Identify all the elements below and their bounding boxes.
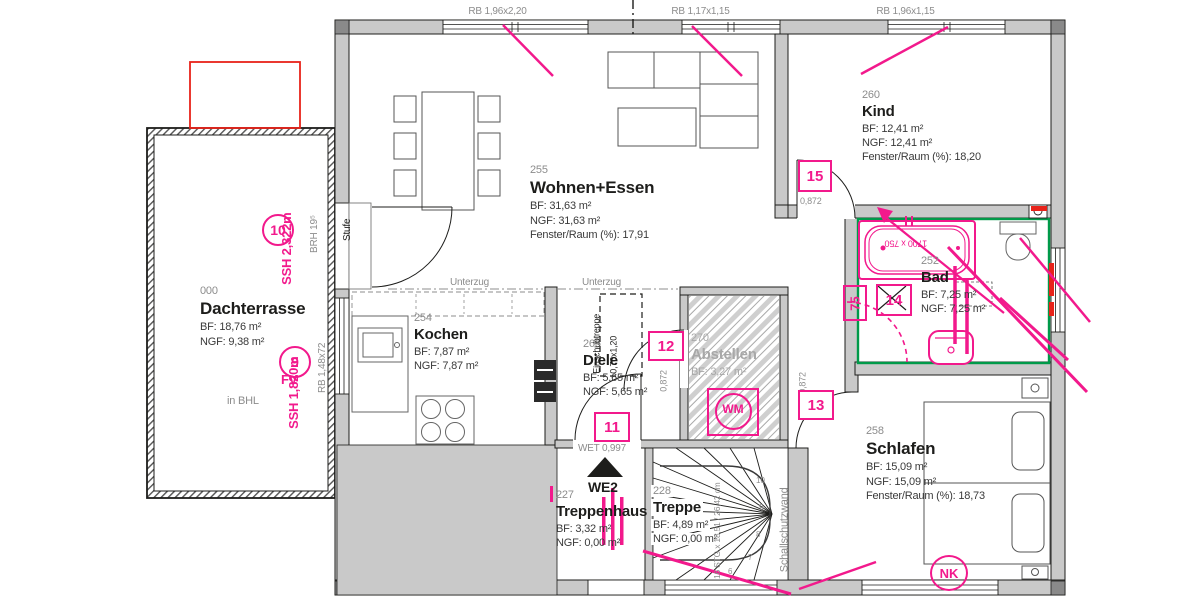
- room-ngf: NGF: 5,65 m²: [583, 385, 647, 399]
- room-bf: BF: 18,76 m²: [200, 320, 305, 334]
- attic-ladder-size: 0,70x1,20: [608, 336, 620, 374]
- neighbour-unit-area: [337, 445, 557, 595]
- room-bf: BF: 3,32 m²: [556, 522, 647, 536]
- washing-machine-icon: WM: [707, 388, 759, 436]
- room-block-wohnen: 255 Wohnen+Essen BF: 31,63 m² NGF: 31,63…: [530, 163, 654, 242]
- room-bf: BF: 7,87 m²: [414, 345, 478, 359]
- room-name: Dachterrasse: [200, 298, 305, 320]
- room-bf: BF: 7,25 m²: [921, 288, 985, 302]
- room-block-schlafen: 258 Schlafen BF: 15,09 m² NGF: 15,09 m² …: [866, 424, 985, 503]
- red-markup-rect: [190, 62, 300, 128]
- room-block-abstellen: 270 Abstellen BF: 3,27 m²: [691, 331, 757, 379]
- room-block-treppe: 228 Treppe BF: 4,89 m² NGF: 0,00 m²: [651, 484, 719, 546]
- room-name: Treppe: [651, 499, 703, 516]
- room-bf: BF: 3,27 m²: [691, 365, 757, 379]
- unterzug-label: Unterzug: [450, 276, 489, 289]
- room-name: Treppenhaus: [556, 502, 647, 522]
- window-size-label: RB 1,96x2,20: [440, 5, 555, 18]
- room-block-dachterrasse: 000 Dachterrasse BF: 18,76 m² NGF: 9,38 …: [200, 284, 305, 349]
- washing-machine-label: WM: [709, 402, 757, 416]
- wet-dim-label: WET 0,997: [563, 442, 641, 455]
- stair-step-number: 9: [759, 503, 764, 512]
- marker-box-11: 11: [594, 412, 630, 442]
- stove-icon: [416, 396, 474, 444]
- terrace-note: in BHL: [227, 394, 259, 408]
- room-bf: BF: 4,89 m²: [651, 519, 710, 531]
- door-width-dim: 0,872: [800, 196, 822, 208]
- marker-box-75: 75: [843, 285, 867, 321]
- room-number: 000: [200, 284, 305, 298]
- stair-step-number: 8: [756, 530, 761, 539]
- room-name: Wohnen+Essen: [530, 177, 654, 199]
- room-fenster: Fenster/Raum (%): 18,20: [862, 150, 981, 164]
- stufe-label: Stufe: [341, 219, 354, 241]
- room-block-treppenhaus: 227 Treppenhaus BF: 3,32 m² NGF: 0,00 m²: [556, 488, 647, 550]
- room-ngf: NGF: 15,09 m²: [866, 475, 985, 489]
- brh-label: BRH 19⁵: [308, 215, 321, 253]
- unterzug-label: Unterzug: [582, 276, 621, 289]
- room-ngf: NGF: 7,87 m²: [414, 359, 478, 373]
- sofa-icon: [608, 52, 758, 148]
- ssh-label-top: SSH 2,322m: [279, 212, 296, 284]
- ssh-label-bottom: SSH 1,820m: [286, 356, 303, 428]
- stair-step-number: 7: [748, 553, 753, 562]
- room-ngf: NGF: 31,63 m²: [530, 214, 654, 228]
- room-number: 228: [651, 485, 673, 497]
- room-fenster: Fenster/Raum (%): 18,73: [866, 489, 985, 503]
- room-ngf: NGF: 7,25 m²: [921, 302, 985, 316]
- room-name: Schlafen: [866, 438, 985, 460]
- room-number: 255: [530, 163, 654, 177]
- entrance-arrow-icon: [587, 457, 623, 477]
- room-block-kind: 260 Kind BF: 12,41 m² NGF: 12,41 m² Fens…: [862, 88, 981, 165]
- attic-ladder-label: Einschubtreppe: [591, 314, 603, 374]
- room-name: Abstellen: [691, 345, 757, 365]
- window-size-label: RB 1,96x1,15: [848, 5, 963, 18]
- marker-box-75-text: 75: [848, 296, 863, 310]
- stair-step-number: 10: [756, 476, 765, 485]
- room-name: Bad: [921, 268, 985, 288]
- room-bf: BF: 12,41 m²: [862, 122, 981, 136]
- dining-table-icon: [394, 92, 500, 210]
- room-ngf: NGF: 0,00 m²: [556, 536, 647, 550]
- window-size-label-left: RB 1,48x72: [316, 343, 329, 393]
- room-ngf: NGF: 12,41 m²: [862, 136, 981, 150]
- room-fenster: Fenster/Raum (%): 17,91: [530, 228, 654, 242]
- room-number: 260: [862, 88, 981, 102]
- stair-dimension-label: 16 STG x 18,51 / 26,42 cm: [712, 482, 723, 579]
- room-block-kochen: 254 Kochen BF: 7,87 m² NGF: 7,87 m²: [414, 311, 478, 373]
- window-size-label: RB 1,17x1,15: [643, 5, 758, 18]
- floor-plan: 10 9 8 7 6 RB 1,96x2,20 RB 1,17x1,15 RB …: [0, 0, 1200, 600]
- room-bf: BF: 31,63 m²: [530, 199, 654, 213]
- room-number: 270: [691, 331, 757, 345]
- marker-box-14: 14: [876, 284, 912, 316]
- bathtub-size-label: 1700 x 750: [874, 237, 938, 249]
- nk-marker: NK: [930, 555, 968, 591]
- sink-icon: [358, 328, 402, 362]
- room-number: 258: [866, 424, 985, 438]
- room-name: Kochen: [414, 325, 478, 345]
- marker-box-15: 15: [798, 160, 832, 192]
- room-bf: BF: 15,09 m²: [866, 460, 985, 474]
- room-ngf: NGF: 0,00 m²: [651, 533, 719, 545]
- room-name: Kind: [862, 102, 981, 122]
- we2-label: WE2: [588, 478, 618, 496]
- room-number: 252: [921, 254, 985, 268]
- schallschutzwand-label: Schallschutzwand: [778, 487, 792, 572]
- marker-box-13: 13: [798, 390, 834, 420]
- marker-box-12: 12: [648, 331, 684, 361]
- room-block-bad: 252 Bad BF: 7,25 m² NGF: 7,25 m²: [921, 254, 985, 316]
- room-number: 254: [414, 311, 478, 325]
- door-width-dim: 0,872: [658, 370, 670, 392]
- toilet-icon: [1000, 222, 1036, 260]
